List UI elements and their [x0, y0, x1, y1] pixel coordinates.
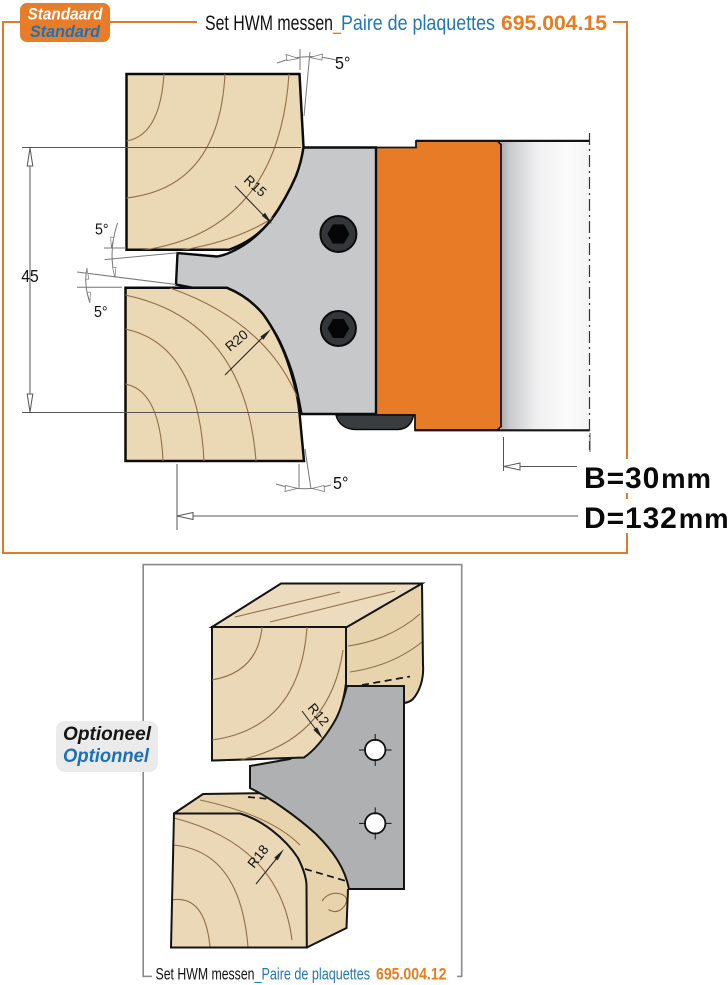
svg-text:5°: 5°: [335, 53, 350, 73]
svg-text:Standard: Standard: [30, 23, 101, 41]
svg-text:45: 45: [21, 266, 38, 286]
svg-text:B=30mm: B=30mm: [584, 462, 712, 495]
svg-text:Optioneel: Optioneel: [63, 724, 152, 745]
svg-text:Standaard: Standaard: [28, 6, 104, 24]
svg-text:Set HWM messen_Paire de plaque: Set HWM messen_Paire de plaquettes695.00…: [205, 12, 607, 35]
svg-text:5°: 5°: [94, 305, 108, 322]
svg-text:Optionnel: Optionnel: [63, 746, 150, 767]
svg-text:5°: 5°: [95, 222, 109, 239]
svg-text:D=132mm: D=132mm: [584, 502, 728, 535]
svg-text:Set HWM messen_Paire de plaque: Set HWM messen_Paire de plaquettes695.00…: [156, 966, 447, 984]
svg-text:5°: 5°: [333, 473, 348, 493]
